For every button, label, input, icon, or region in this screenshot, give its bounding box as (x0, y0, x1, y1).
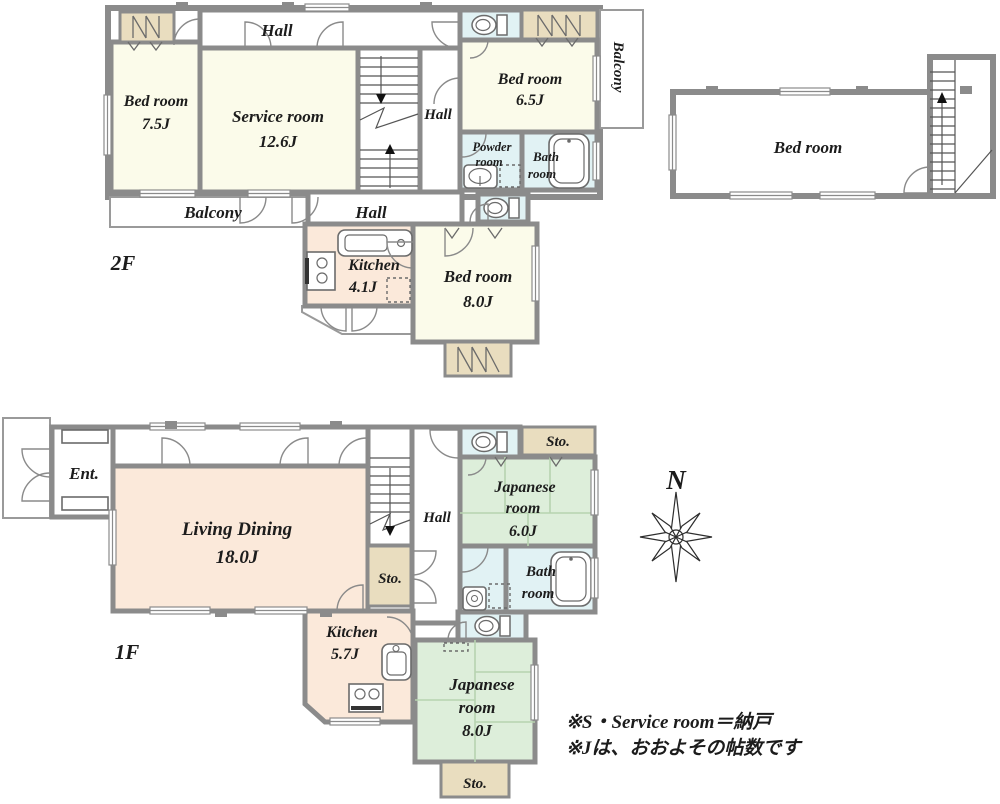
1f-sto-south-label: Sto. (463, 776, 487, 792)
1f-sto-stairs-label: Sto. (378, 571, 402, 587)
japanese6-size: 6.0J (509, 523, 538, 540)
floor-2f: Bed room 7.5J Service room 12.6J Hall Ha… (104, 2, 643, 376)
japanese8-size: 8.0J (462, 721, 492, 740)
2f-stairwell (358, 48, 420, 192)
floorplan-drawing: Bed room 7.5J Service room 12.6J Hall Ha… (0, 0, 1000, 804)
2f-right-door-arc (904, 167, 930, 193)
bedroom-75-name: Bed room (123, 93, 188, 110)
2f-hall-lower-label: Hall (354, 203, 386, 222)
floor-1f: Ent. Living Dining 18.0J Hall Sto. Sto. … (3, 418, 598, 797)
1f-kitchen-sink-icon (382, 644, 411, 680)
2f-hall-top-label: Hall (260, 21, 292, 40)
bedroom-80-name: Bed room (443, 267, 512, 286)
2f-kitchen-sink-icon (338, 230, 412, 256)
floor-2f-label: 2F (110, 251, 136, 275)
2f-right-stairs-icon (930, 60, 992, 193)
1f-bath-line1: Bath (525, 564, 556, 580)
legend-notes: ※S・Service room＝納戸 ※Jは、おおよその帖数です (566, 711, 803, 759)
compass-icon: N (640, 465, 712, 582)
living-dining-name: Living Dining (181, 519, 292, 540)
toilet-icon (484, 198, 519, 218)
powder-room-line1: Powder (473, 140, 512, 154)
toilet-icon (472, 432, 507, 452)
2f-stove-icon (305, 252, 335, 290)
japanese8-line2: room (459, 698, 496, 717)
floorplan-page: Bed room 7.5J Service room 12.6J Hall Ha… (0, 0, 1000, 804)
2f-hall-right-label: Hall (423, 107, 452, 123)
japanese6-line1: Japanese (493, 479, 555, 496)
1f-hall-label: Hall (422, 510, 451, 526)
2f-bath-line2: room (528, 166, 556, 181)
1f-kitchen-size: 5.7J (331, 646, 360, 663)
powder-room-line2: room (475, 155, 502, 169)
entrance-label: Ent. (68, 464, 99, 483)
bedroom-80-size: 8.0J (463, 292, 493, 311)
bedroom-75-size: 7.5J (142, 116, 171, 133)
1f-bath-line2: room (522, 586, 555, 602)
1f-washing-machine-icon (463, 587, 486, 610)
toilet-icon (475, 616, 510, 636)
right-bedroom-name: Bed room (773, 138, 842, 157)
1f-sto-ne-label: Sto. (546, 434, 570, 450)
2f-hall-top (200, 10, 460, 48)
2f-closet-65 (522, 10, 597, 40)
floor-2f-right-block: Bed room (669, 57, 993, 199)
bedroom-65-size: 6.5J (516, 92, 545, 109)
japanese6-line2: room (506, 500, 541, 517)
1f-shoe-cabinet (62, 430, 108, 443)
service-room-size: 12.6J (259, 132, 298, 151)
living-dining-size: 18.0J (216, 547, 259, 568)
2f-kitchen-size: 4.1J (348, 279, 378, 296)
compass-north-label: N (665, 465, 687, 495)
note-jou-size: ※Jは、おおよその帖数です (566, 737, 803, 759)
2f-bath-line1: Bath (532, 149, 559, 164)
note-service-room: ※S・Service room＝納戸 (566, 711, 774, 733)
2f-right-stairs-up-arrow (937, 92, 947, 103)
floor-1f-label: 1F (115, 640, 140, 664)
1f-kitchen-name: Kitchen (325, 624, 378, 641)
japanese8-line1: Japanese (448, 675, 515, 694)
toilet-icon (472, 15, 507, 35)
2f-balcony-bottom-label: Balcony (183, 203, 242, 222)
1f-stove-icon (349, 684, 383, 712)
bathtub-icon (551, 552, 591, 606)
1f-porch (3, 418, 50, 518)
2f-kitchen-name: Kitchen (347, 257, 400, 274)
2f-right-windows (669, 88, 875, 199)
1f-corridor (113, 427, 370, 466)
service-room-name: Service room (232, 107, 324, 126)
1f-shoe-cabinet (62, 497, 108, 510)
2f-balcony-right-label: Balcony (610, 41, 626, 93)
bedroom-65-name: Bed room (497, 71, 562, 88)
